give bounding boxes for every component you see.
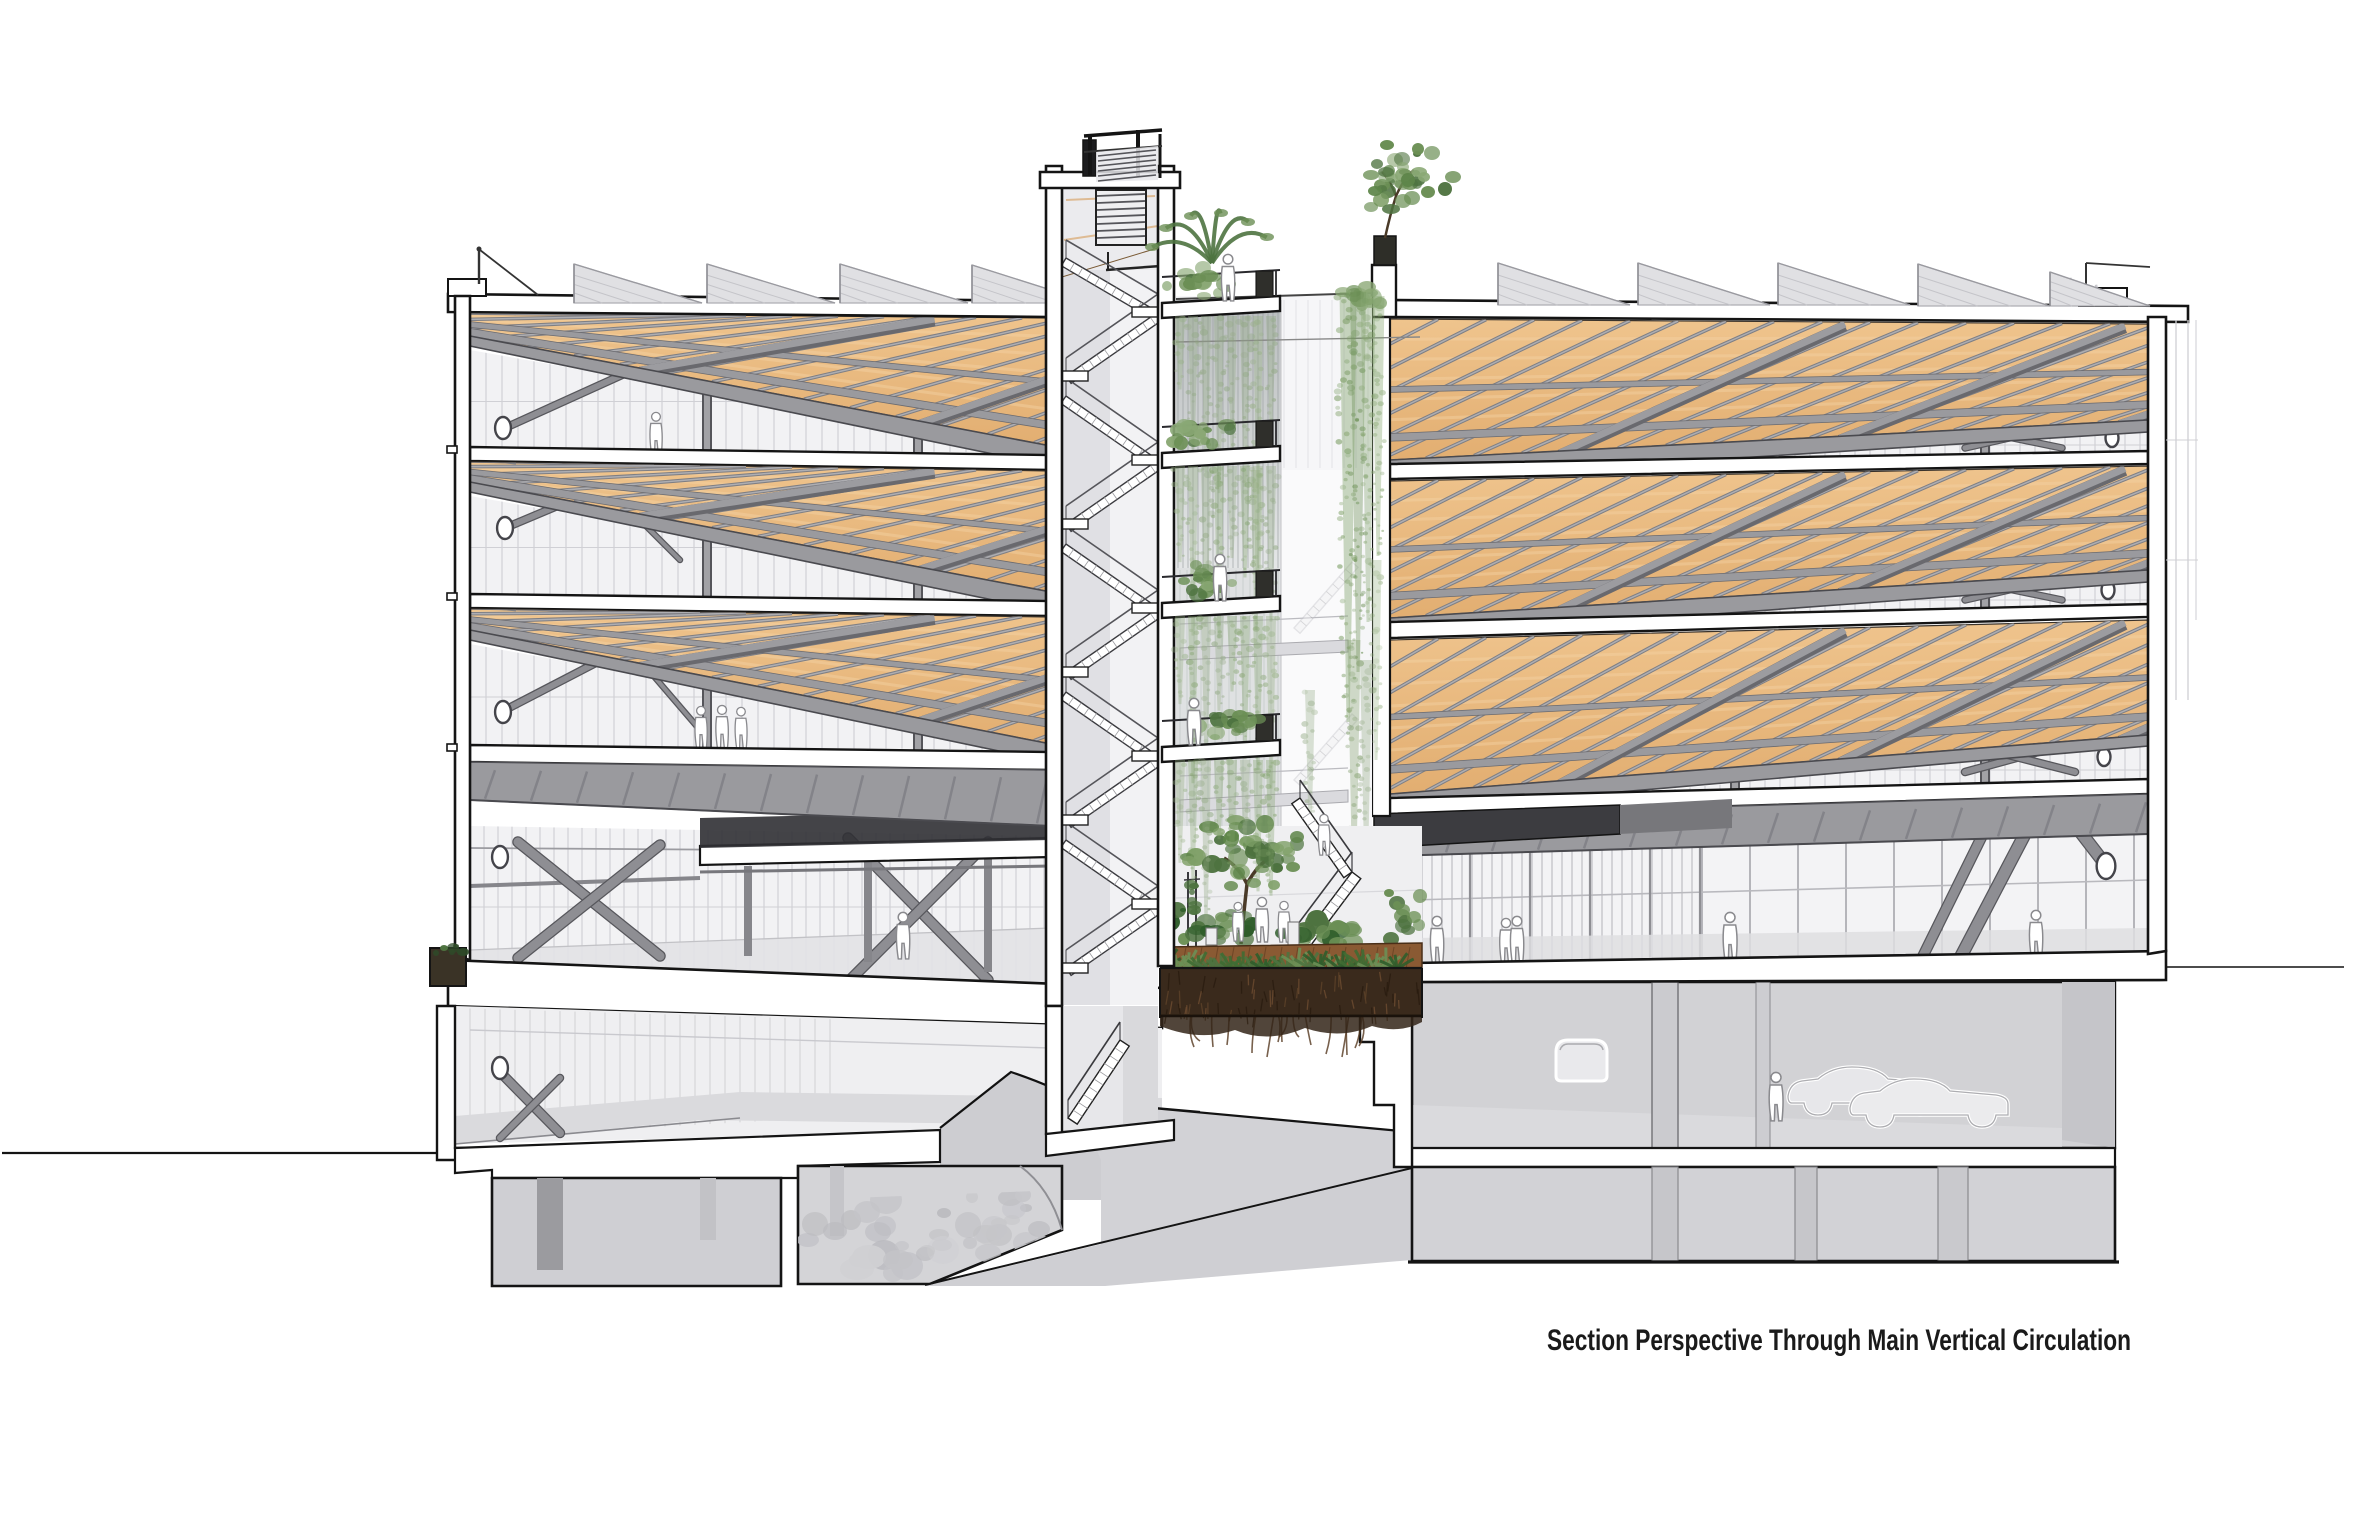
- svg-text:Section Perspective Through Ma: Section Perspective Through Main Vertica…: [1547, 1324, 2131, 1357]
